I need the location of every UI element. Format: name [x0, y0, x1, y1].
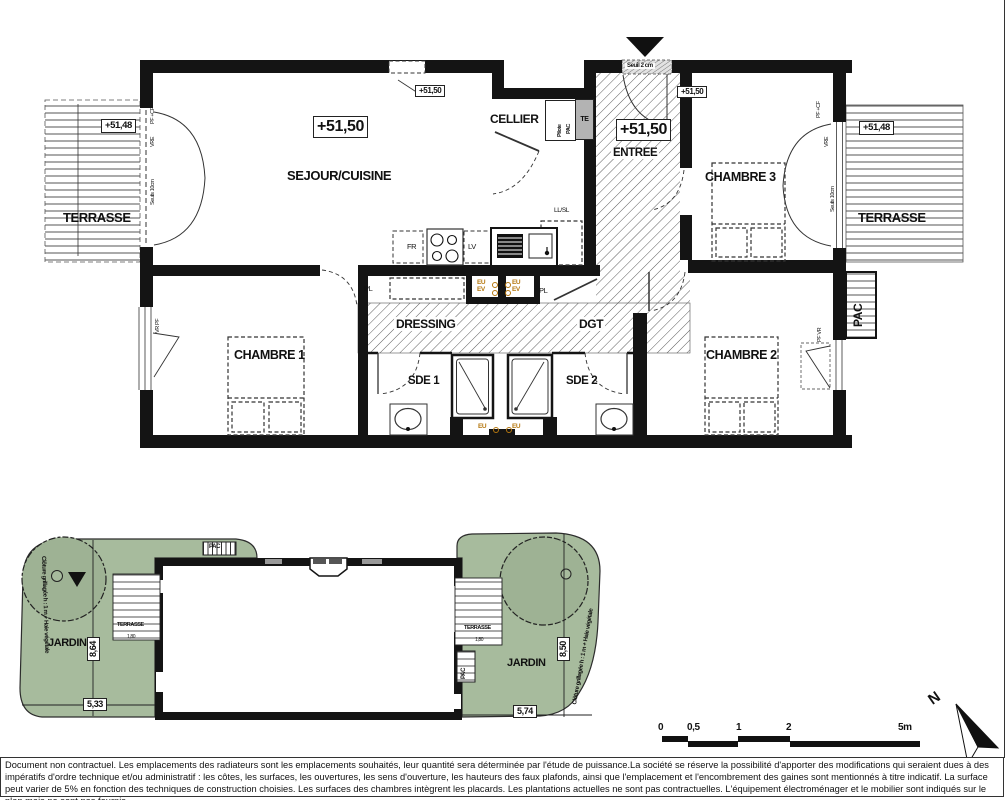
window-label-seuils-right: Seuils 10cm: [830, 186, 836, 212]
site-terrasse-left: [113, 574, 160, 640]
scale-tick-05: 0,5: [687, 722, 700, 733]
room-label-chambre2: CHAMBRE 2: [706, 348, 777, 362]
fridge-label: FR: [407, 242, 416, 251]
north-arrow-icon: [956, 704, 998, 764]
jardin-left-width-dim: 5,33: [83, 698, 107, 711]
entrance-arrow-icon: [626, 37, 664, 57]
level-label-entree: +51,50: [616, 119, 671, 141]
duct-label-group2: EU EV: [512, 279, 520, 294]
closet-label-left: PL: [364, 284, 372, 293]
disclaimer-box: Document non contractuel. Les emplacemen…: [0, 757, 1004, 797]
room-label-cellier: CELLIER: [490, 112, 539, 126]
site-terrasse-right: [455, 578, 502, 645]
scale-tick-1: 1: [736, 722, 741, 733]
room-label-entree: ENTREE: [611, 147, 659, 159]
disclaimer-text: Document non contractuel. Les emplacemen…: [5, 760, 989, 800]
pilote-pac-label-line1: Pilote: [557, 124, 563, 137]
level-label-sejour: +51,50: [313, 116, 368, 138]
room-label-terrasse-left: TERRASSE: [63, 210, 131, 225]
pilote-pac-label-line2: PAC: [566, 124, 572, 134]
site-terrasse-left-dim: 1,80: [127, 634, 135, 640]
level-label-window: +51,50: [415, 85, 445, 97]
scale-tick-0: 0: [658, 722, 663, 733]
window-label-pf-vr-chambre2: PF VR: [817, 328, 823, 342]
jardin-left-label: JARDIN: [48, 637, 87, 649]
floor-plan: [45, 37, 963, 448]
scale-tick-2: 2: [786, 722, 791, 733]
duct-eu2: EU: [512, 279, 520, 286]
room-label-chambre1: CHAMBRE 1: [234, 348, 305, 362]
closet-label-right: PL: [539, 286, 547, 295]
architectural-plan-page: +51,50 +51,50 SEJOUR/CUISINE CELLIER Pil…: [0, 0, 1008, 800]
tree-icon: [500, 537, 588, 625]
level-label-terrasse-right: +51,48: [859, 121, 894, 135]
showers: [452, 355, 552, 418]
window-label-pf-cf-left: PF +CF: [150, 107, 156, 124]
duct-eu4: EU: [512, 423, 520, 430]
duct-label-group1: EU EV: [477, 279, 485, 294]
scale-tick-5m: 5m: [898, 722, 912, 733]
site-terrasse-right-dim: 1,80: [475, 637, 483, 643]
dishwasher-label: LV: [468, 242, 476, 251]
window-label-seuils-left: Seuils 10cm: [150, 179, 156, 205]
room-label-chambre3: CHAMBRE 3: [705, 170, 776, 184]
site-terrasse-left-label: TERRASSE: [117, 622, 144, 628]
duct-ev1: EV: [477, 286, 485, 293]
jardin-right-width-dim: 5,74: [513, 705, 537, 718]
window-label-vre-left: VRE: [150, 137, 156, 147]
site-plan: [20, 533, 600, 720]
duct-eu1: EU: [477, 279, 485, 286]
scale-bar: [662, 736, 920, 747]
te-label: TE: [580, 116, 588, 123]
room-label-sde2: SDE 2: [566, 375, 597, 387]
pac-unit-label: PAC: [851, 304, 865, 327]
jardin-right-label: JARDIN: [507, 657, 546, 669]
window-label-vre-right: VRE: [824, 137, 830, 147]
seuil-entree-label: Seuil 2 cm: [625, 63, 655, 69]
washer-dryer-label: LL/SL: [554, 207, 569, 214]
te-box: TE: [575, 99, 594, 140]
room-label-sejour-cuisine: SEJOUR/CUISINE: [287, 168, 391, 183]
room-label-dgt: DGT: [577, 317, 605, 331]
site-pac-top-label: PAC: [209, 544, 220, 550]
jardin-right-depth-dim: 8,50: [557, 637, 570, 661]
window-label-vr-pf-chambre1: VR PF: [155, 319, 161, 333]
duct-ev2: EV: [512, 286, 520, 293]
window-label-pf-cf-right: PF +CF: [816, 101, 822, 118]
site-pac-right-label: PAC: [461, 668, 467, 679]
room-label-sde1: SDE 1: [408, 375, 439, 387]
level-label-chambre3: +51,50: [677, 86, 707, 98]
room-label-terrasse-right: TERRASSE: [858, 210, 926, 225]
room-label-dressing: DRESSING: [394, 317, 457, 331]
site-terrasse-right-label: TERRASSE: [464, 625, 491, 631]
level-label-terrasse-left: +51,48: [101, 119, 136, 133]
jardin-left-depth-dim: 8,64: [87, 637, 100, 661]
duct-eu3: EU: [478, 423, 486, 430]
pilote-pac-box: Pilote PAC: [545, 100, 576, 141]
